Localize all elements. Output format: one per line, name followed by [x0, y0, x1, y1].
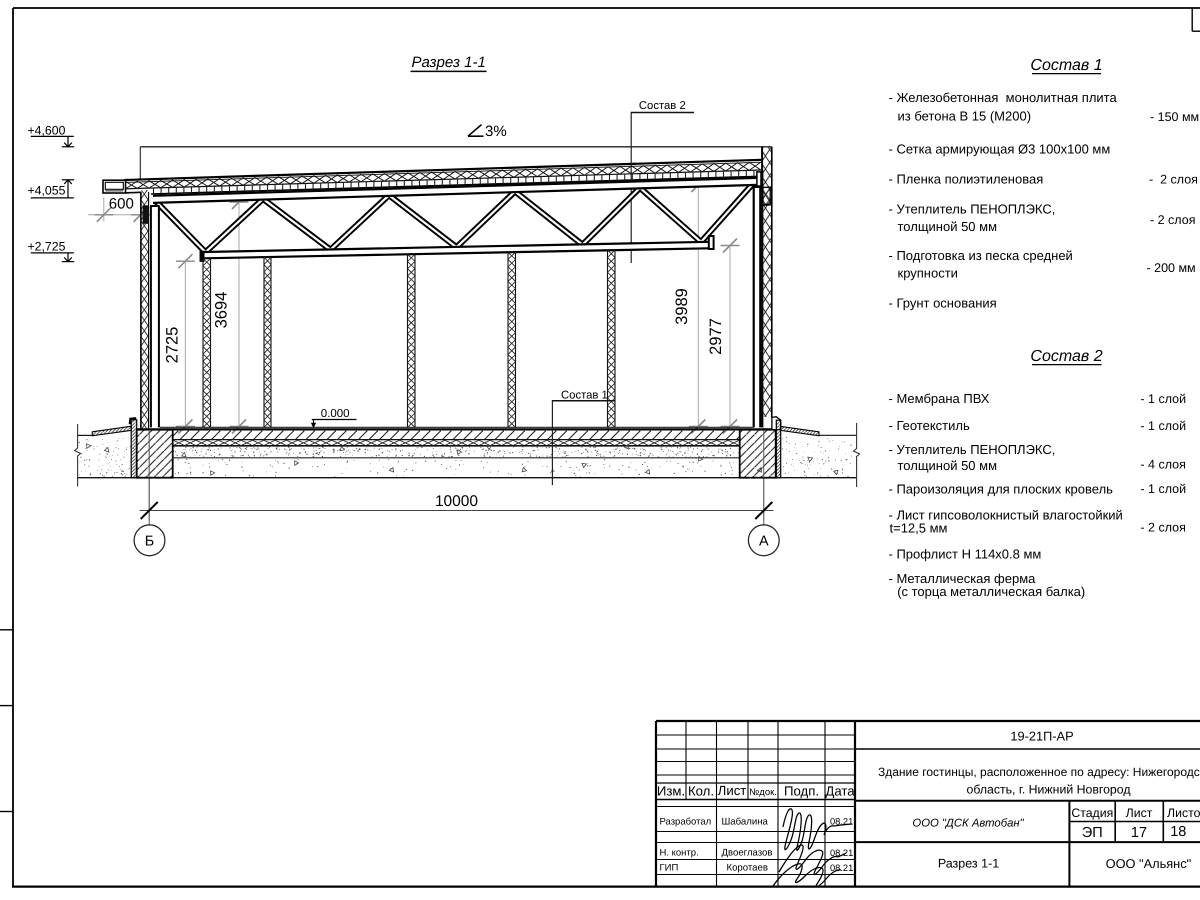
svg-text:- Сетка армирующая Ø3 100х100: - Сетка армирующая Ø3 100х100 мм [889, 142, 1111, 157]
svg-text:17: 17 [1131, 825, 1147, 841]
svg-text:область, г. Нижний Новгород: область, г. Нижний Новгород [967, 782, 1131, 796]
svg-text:Н. контр.: Н. контр. [660, 847, 699, 858]
svg-text:толщиной 50 мм: толщиной 50 мм [898, 219, 998, 234]
svg-text:Б: Б [145, 534, 154, 550]
svg-text:- 2 слоя: - 2 слоя [1150, 213, 1195, 227]
svg-text:из бетона В 15 (М200): из бетона В 15 (М200) [898, 109, 1032, 124]
svg-text:- 1 слой: - 1 слой [1140, 392, 1186, 406]
svg-text:- 150 мм: - 150 мм [1150, 110, 1199, 124]
svg-text:+4,055: +4,055 [28, 183, 66, 197]
svg-text:№док.: №док. [749, 787, 777, 798]
svg-text:08.21: 08.21 [830, 848, 853, 858]
svg-text:2977: 2977 [707, 318, 725, 355]
svg-text:Лист: Лист [718, 783, 747, 798]
svg-text:2725: 2725 [163, 327, 181, 364]
svg-text:толщиной 50 мм: толщиной 50 мм [898, 458, 998, 473]
svg-text:Изм.: Изм. [657, 784, 685, 799]
svg-text:Стадия: Стадия [1071, 806, 1113, 820]
svg-text:600: 600 [109, 196, 134, 213]
svg-text:- Подготовка из песка средней: - Подготовка из песка средней [889, 248, 1073, 263]
svg-text:Двоеглазов: Двоеглазов [722, 848, 773, 859]
svg-text:А: А [759, 534, 769, 550]
svg-text:(с торца металлическая балка): (с торца металлическая балка) [897, 584, 1085, 599]
svg-text:крупности: крупности [898, 265, 958, 280]
svg-text:- Профлист Н 114х0.8 мм: - Профлист Н 114х0.8 мм [889, 546, 1042, 561]
svg-text:ГИП: ГИП [660, 862, 679, 873]
svg-text:Лист: Лист [1126, 806, 1153, 820]
svg-text:- Геотекстиль: - Геотекстиль [889, 418, 970, 433]
svg-text:- 4 слоя: - 4 слоя [1140, 458, 1185, 472]
svg-text:- 2 слоя: - 2 слоя [1149, 173, 1198, 187]
svg-text:Листов: Листов [1167, 806, 1200, 820]
svg-text:Дата: Дата [825, 784, 855, 799]
svg-text:- Утеплитель ПЕНОПЛЭКС,: - Утеплитель ПЕНОПЛЭКС, [889, 442, 1056, 457]
svg-text:+4,600: +4,600 [28, 123, 66, 137]
svg-text:Коротаев: Коротаев [727, 863, 768, 874]
svg-text:3989: 3989 [673, 288, 691, 325]
svg-text:- Железобетонная монолитная п: - Железобетонная монолитная плита [889, 90, 1118, 105]
svg-text:- Мембрана ПВХ: - Мембрана ПВХ [889, 391, 990, 406]
svg-text:3694: 3694 [213, 292, 231, 329]
svg-text:10000: 10000 [435, 493, 478, 510]
svg-text:- Пленка полиэтиленовая: - Пленка полиэтиленовая [889, 172, 1044, 187]
svg-text:ЭП: ЭП [1082, 825, 1103, 841]
svg-text:- Утеплитель ПЕНОПЛЭКС,: - Утеплитель ПЕНОПЛЭКС, [889, 202, 1056, 217]
svg-text:Состав 1: Состав 1 [1030, 57, 1102, 74]
svg-text:ООО "ДСК Автобан": ООО "ДСК Автобан" [912, 818, 1024, 830]
svg-text:- Пароизоляция для плоских кро: - Пароизоляция для плоских кровель [889, 482, 1114, 497]
svg-text:3%: 3% [485, 123, 507, 140]
svg-text:- Грунт основания: - Грунт основания [889, 295, 997, 310]
svg-text:- 1 слой: - 1 слой [1140, 419, 1186, 433]
svg-text:Состав 2: Состав 2 [1030, 348, 1102, 365]
svg-text:0.000: 0.000 [321, 408, 350, 420]
svg-text:Шабалина: Шабалина [722, 817, 769, 828]
svg-text:t=12,5 мм: t=12,5 мм [890, 521, 948, 536]
svg-text:+2,725: +2,725 [28, 239, 66, 253]
svg-text:- 2 слоя: - 2 слоя [1140, 521, 1185, 535]
svg-text:18: 18 [1170, 824, 1186, 840]
svg-text:- 200 мм: - 200 мм [1147, 261, 1196, 275]
svg-text:Состав 1: Состав 1 [561, 389, 608, 401]
svg-text:Здание гостинцы, расположенное: Здание гостинцы, расположенное по адресу… [878, 765, 1200, 779]
svg-text:Состав 2: Состав 2 [639, 100, 686, 112]
svg-text:Разрез 1-1: Разрез 1-1 [938, 856, 999, 870]
svg-text:ООО "Альянс": ООО "Альянс" [1106, 856, 1192, 871]
svg-text:Подп.: Подп. [784, 784, 819, 799]
svg-text:- 1 слой: - 1 слой [1140, 482, 1186, 496]
svg-text:Разрез 1-1: Разрез 1-1 [412, 54, 486, 71]
svg-text:19-21П-АР: 19-21П-АР [1010, 729, 1073, 744]
svg-text:Разработал: Разработал [660, 816, 712, 827]
svg-text:Кол.: Кол. [688, 784, 714, 799]
